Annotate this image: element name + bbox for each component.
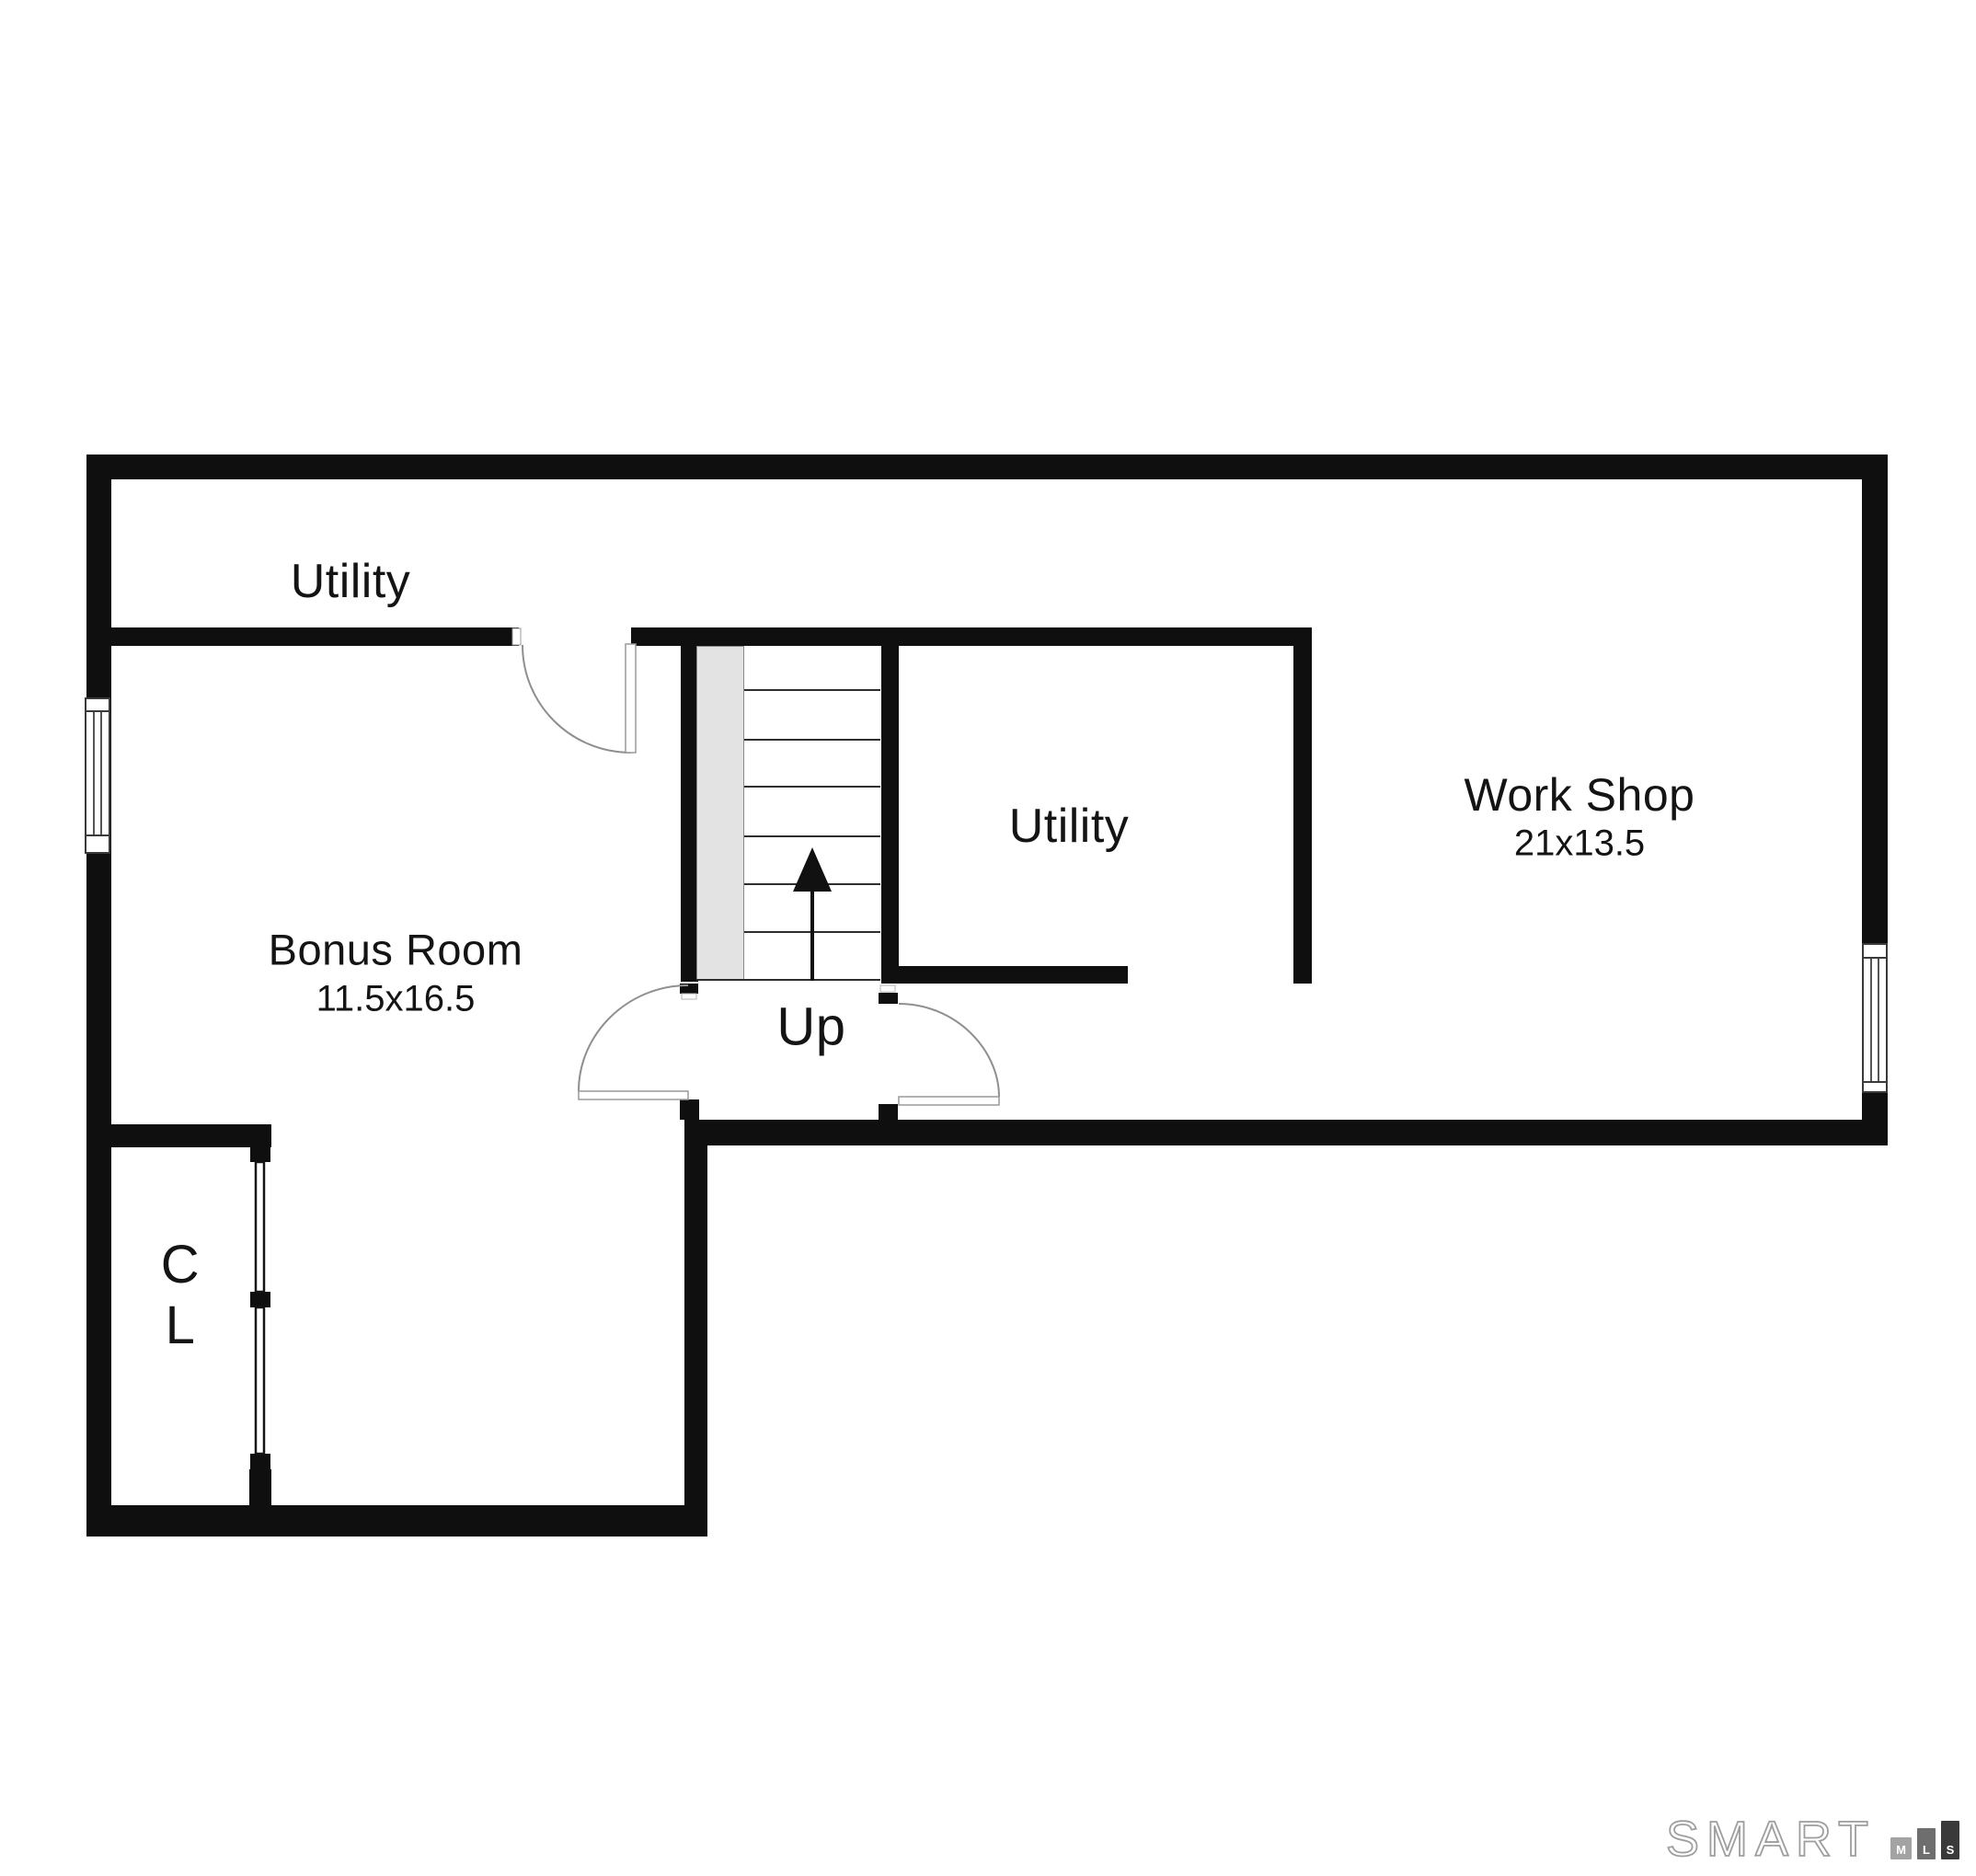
logo-bar-letter: L [1923, 1844, 1930, 1856]
logo-bar-l: L [1917, 1828, 1936, 1859]
room-dimensions-bonus-room: 11.5x16.5 [316, 979, 476, 1020]
logo-wordmark: SMART [1666, 1820, 1876, 1859]
door-jamb [880, 985, 895, 992]
door-swing-arc [523, 645, 631, 753]
door-jamb [682, 994, 696, 999]
logo-bar-s: S [1941, 1821, 1959, 1859]
room-label-closet: C L [161, 1235, 200, 1356]
logo-bar-letter: S [1947, 1844, 1955, 1856]
room-label-bonus-room: Bonus Room [269, 925, 523, 975]
door-swing-arc [579, 985, 688, 1091]
room-label-utility-top: Utility [291, 554, 411, 609]
closet-label-line2: L [166, 1295, 196, 1355]
room-label-utility-middle: Utility [1009, 799, 1130, 854]
closet-label-line1: C [161, 1235, 200, 1295]
door-leaf [899, 1097, 999, 1105]
room-label-work-shop: Work Shop [1465, 768, 1695, 822]
stairs-up-label: Up [776, 996, 845, 1058]
floor-plan: Utility Bonus Room 11.5x16.5 Utility Wor… [0, 0, 1976, 1876]
door-leaf [579, 1091, 688, 1099]
room-dimensions-work-shop: 21x13.5 [1514, 823, 1645, 865]
closet-door-panel [256, 1307, 264, 1454]
door-jamb [512, 628, 521, 645]
door-leaf [626, 644, 636, 753]
smart-mls-logo: SMART M L S [1666, 1820, 1959, 1859]
logo-bar-letter: M [1896, 1844, 1906, 1856]
closet-door-panel [256, 1162, 264, 1292]
logo-bar-m: M [1890, 1837, 1912, 1859]
door-swing-arc [899, 1004, 999, 1097]
